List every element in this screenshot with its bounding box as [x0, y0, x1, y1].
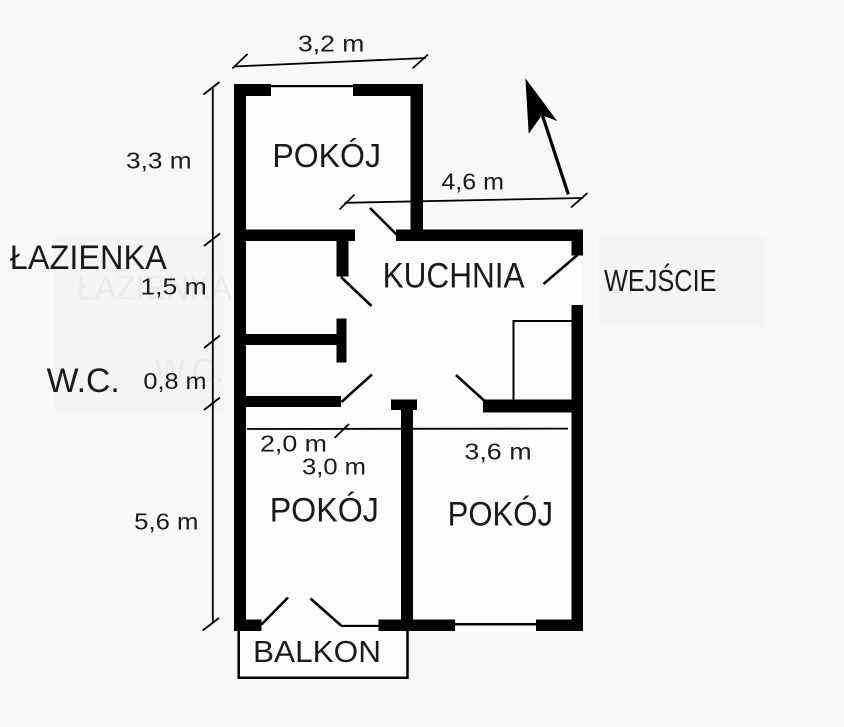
svg-text:4,6 m: 4,6 m — [441, 169, 504, 195]
svg-text:WEJŚCIE: WEJŚCIE — [604, 262, 717, 298]
svg-text:POKÓJ: POKÓJ — [448, 495, 553, 534]
svg-text:0,8 m: 0,8 m — [143, 368, 206, 394]
svg-text:3,0 m: 3,0 m — [302, 454, 366, 480]
svg-text:3,3 m: 3,3 m — [126, 148, 192, 174]
svg-text:W.C.: W.C. — [47, 362, 120, 400]
svg-text:3,6 m: 3,6 m — [464, 439, 531, 465]
svg-text:POKÓJ: POKÓJ — [270, 492, 379, 530]
svg-text:KUCHNIA: KUCHNIA — [383, 256, 525, 296]
svg-text:3,2 m: 3,2 m — [298, 30, 364, 56]
svg-text:ŁAZIENKA: ŁAZIENKA — [10, 239, 167, 277]
svg-text:5,6 m: 5,6 m — [134, 508, 198, 534]
svg-text:BALKON: BALKON — [253, 636, 381, 669]
svg-text:POKÓJ: POKÓJ — [272, 137, 381, 174]
svg-text:1,5 m: 1,5 m — [140, 274, 206, 300]
